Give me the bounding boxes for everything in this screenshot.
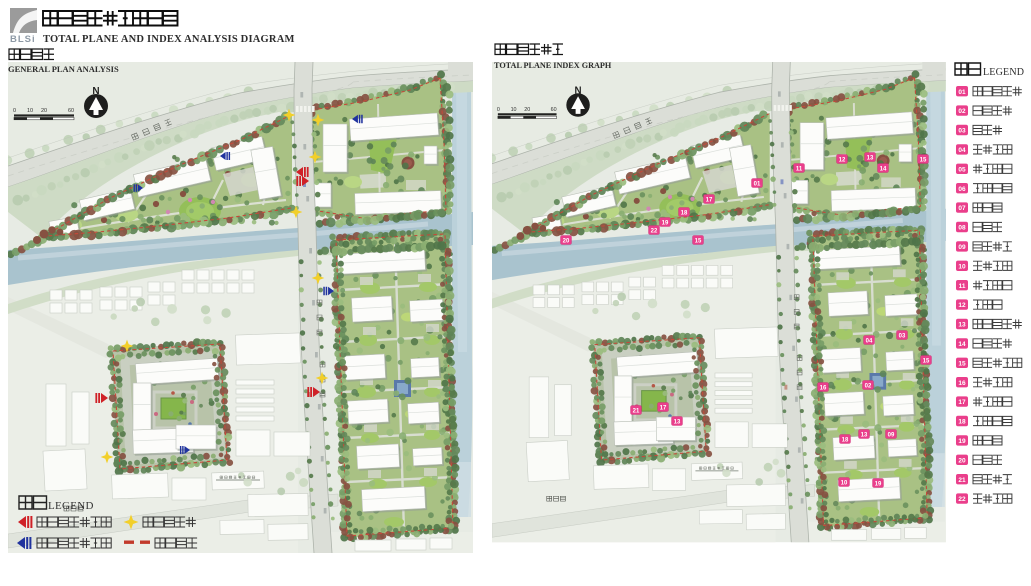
svg-text:22: 22: [958, 496, 966, 503]
svg-text:18: 18: [842, 437, 849, 443]
svg-text:TOTAL PLANE INDEX GRAPH: TOTAL PLANE INDEX GRAPH: [494, 61, 612, 70]
svg-text:02: 02: [865, 383, 872, 389]
svg-text:TOTAL PLANE AND INDEX ANALYSIS: TOTAL PLANE AND INDEX ANALYSIS DIAGRAM: [43, 34, 295, 45]
svg-text:04: 04: [866, 338, 873, 344]
svg-text:12: 12: [839, 157, 846, 163]
svg-text:09: 09: [888, 432, 895, 438]
svg-text:15: 15: [923, 358, 930, 364]
svg-text:10: 10: [958, 263, 966, 270]
svg-text:21: 21: [958, 477, 966, 484]
svg-text:13: 13: [958, 322, 966, 329]
svg-text:LEGEND: LEGEND: [983, 67, 1024, 78]
svg-text:01: 01: [754, 181, 761, 187]
svg-text:19: 19: [662, 220, 669, 226]
svg-text:03: 03: [899, 333, 906, 339]
svg-text:22: 22: [651, 228, 658, 234]
svg-text:17: 17: [958, 399, 966, 406]
svg-text:10: 10: [841, 480, 848, 486]
svg-text:21: 21: [633, 408, 640, 414]
svg-text:14: 14: [880, 166, 887, 172]
svg-text:20: 20: [563, 238, 570, 244]
svg-text:16: 16: [820, 385, 827, 391]
svg-text:09: 09: [958, 244, 966, 251]
svg-text:16: 16: [958, 380, 966, 387]
svg-text:LEGEND: LEGEND: [48, 500, 94, 512]
svg-text:13: 13: [674, 419, 681, 425]
svg-text:07: 07: [958, 205, 966, 212]
svg-text:08: 08: [958, 225, 966, 232]
svg-text:01: 01: [958, 89, 966, 96]
svg-text:11: 11: [959, 283, 966, 290]
svg-text:GENERAL PLAN ANALYSIS: GENERAL PLAN ANALYSIS: [8, 64, 119, 74]
svg-text:17: 17: [660, 405, 667, 411]
svg-text:18: 18: [681, 210, 688, 216]
svg-text:15: 15: [958, 360, 966, 367]
svg-text:04: 04: [958, 147, 966, 154]
svg-text:BLSi: BLSi: [10, 34, 36, 45]
svg-text:06: 06: [958, 186, 966, 193]
svg-text:13: 13: [867, 155, 874, 161]
svg-text:20: 20: [958, 457, 966, 464]
svg-text:18: 18: [958, 419, 966, 426]
svg-text:02: 02: [958, 108, 966, 115]
svg-text:14: 14: [958, 341, 966, 348]
svg-text:13: 13: [861, 432, 868, 438]
svg-text:19: 19: [875, 481, 882, 487]
svg-text:03: 03: [958, 128, 966, 135]
svg-text:17: 17: [706, 197, 713, 203]
svg-text:15: 15: [920, 157, 927, 163]
svg-text:12: 12: [958, 302, 966, 309]
svg-text:15: 15: [695, 238, 702, 244]
svg-text:05: 05: [958, 166, 966, 173]
svg-text:11: 11: [796, 166, 803, 172]
svg-text:19: 19: [958, 438, 966, 445]
